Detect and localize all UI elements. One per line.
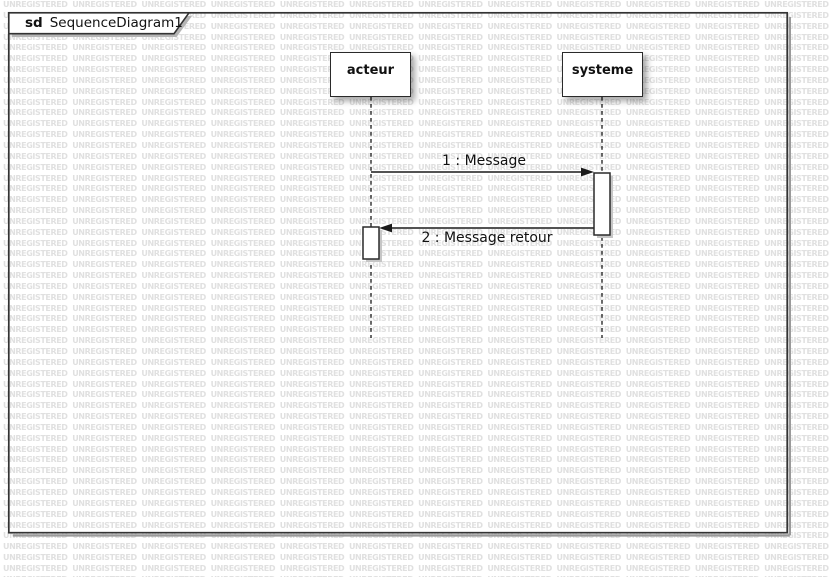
diagram-canvas: UNREGISTEREDUNREGISTEREDUNREGISTEREDUNRE…: [0, 0, 831, 577]
sequence-diagram-svg: [0, 0, 831, 577]
frame-title: sdSequenceDiagram1: [25, 15, 183, 31]
systeme-activation-bar[interactable]: [594, 173, 610, 235]
lifeline-name-acteur: acteur: [347, 63, 394, 78]
lifeline-head-systeme[interactable]: systeme: [562, 52, 643, 97]
lifeline-head-acteur[interactable]: acteur: [330, 52, 411, 97]
frame-name: SequenceDiagram1: [50, 15, 183, 31]
frame-keyword: sd: [25, 15, 43, 31]
acteur-activation-bar[interactable]: [363, 227, 379, 259]
lifeline-name-systeme: systeme: [572, 63, 633, 78]
message-1-label[interactable]: 1 : Message: [442, 154, 526, 169]
message-2-label[interactable]: 2 : Message retour: [421, 231, 552, 246]
message-1-arrowhead-icon: [581, 168, 594, 177]
